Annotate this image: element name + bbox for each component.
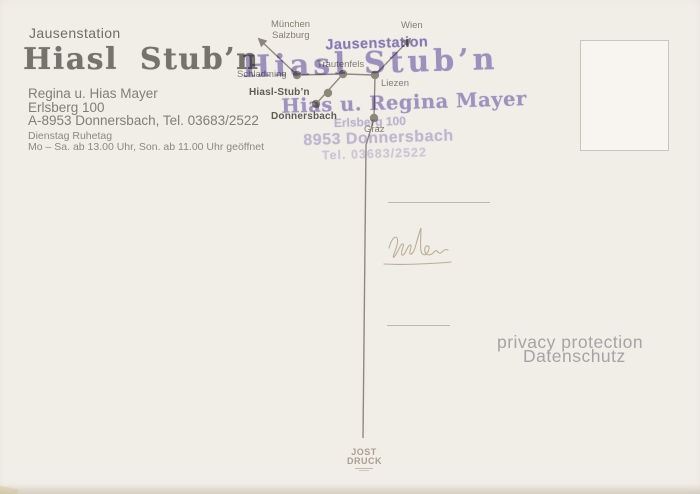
- map-label-liezen: Liezen: [381, 78, 409, 89]
- map-label-wien: Wien: [401, 20, 423, 31]
- printer-logo-rule: [355, 468, 373, 469]
- map-label-hiasl-stubn: Hiasl-Stub’n: [249, 87, 310, 98]
- node-schladming: [293, 71, 301, 79]
- map-label-graz: Graz: [364, 124, 385, 135]
- postcard-back: Jausenstation Hiasl Stub’n Regina u. Hia…: [0, 0, 700, 494]
- node-donnersbach: [312, 100, 320, 108]
- header-overline: Jausenstation: [29, 25, 121, 41]
- handwriting: [384, 228, 451, 264]
- map-label-muenchen: München: [271, 19, 310, 30]
- arrow-to-wien: [375, 39, 410, 75]
- postage-stamp-box: [580, 40, 669, 151]
- map-label-schladming: Schladming: [237, 69, 287, 80]
- node-trautenfels: [339, 70, 347, 78]
- privacy-watermark: privacy protection Datenschutz: [497, 336, 643, 363]
- map-label-salzburg: Salzburg: [272, 30, 310, 41]
- printer-name-line2: DRUCK: [347, 457, 381, 466]
- printer-logo-rule-small: [359, 470, 369, 471]
- scan-bottom-shadow: [0, 484, 700, 494]
- map-label-donnersbach: Donnersbach: [271, 111, 337, 122]
- handwriting-underline: [384, 262, 451, 264]
- node-hiasl-stubn: [324, 89, 332, 97]
- node-liezen: [371, 71, 379, 79]
- page-title: Hiasl Stub’n: [23, 42, 259, 77]
- printer-logo: JOST DRUCK: [347, 448, 381, 471]
- node-graz: [370, 114, 378, 122]
- owner-name: Regina u. Hias Mayer: [28, 86, 158, 101]
- city-telephone: A-8953 Donnersbach, Tel. 03683/2522: [28, 113, 259, 128]
- opening-hours: Mo – Sa. ab 13.00 Uhr, Son. ab 11.00 Uhr…: [28, 141, 264, 153]
- map-label-trautenfels: Trautenfels: [317, 59, 364, 70]
- address-line-1: [388, 202, 490, 203]
- route-lines: [259, 39, 410, 438]
- address-line-2: [387, 325, 450, 326]
